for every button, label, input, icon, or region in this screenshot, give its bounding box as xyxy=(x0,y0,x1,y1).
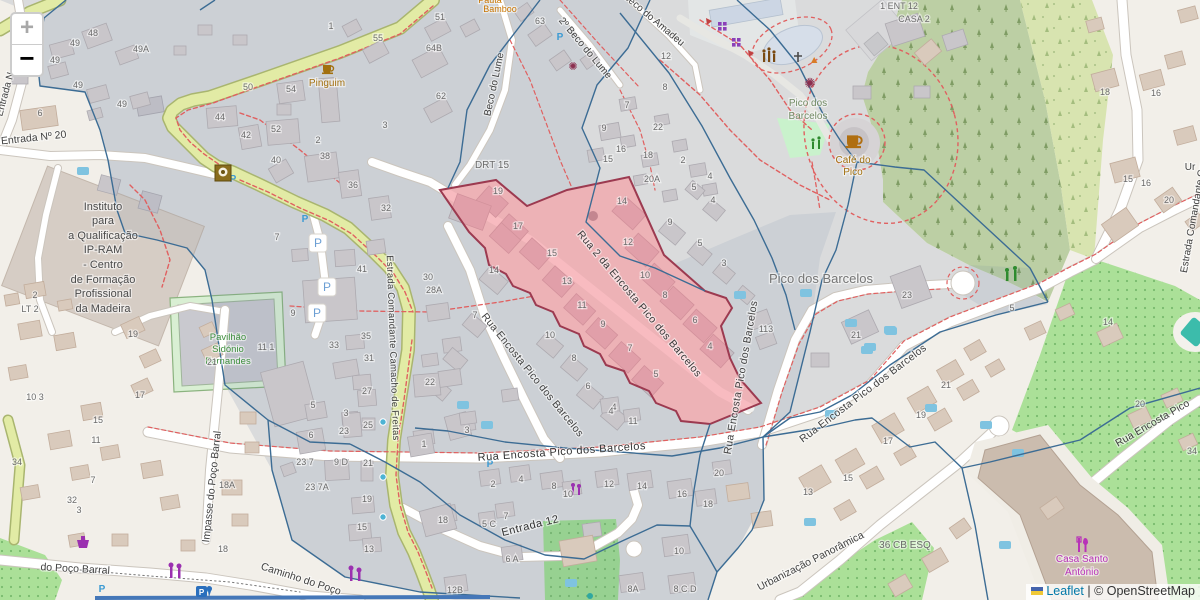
svg-text:32: 32 xyxy=(381,203,391,213)
svg-text:5: 5 xyxy=(653,369,658,379)
svg-text:Profissional: Profissional xyxy=(75,288,132,300)
svg-text:LT 2: LT 2 xyxy=(21,304,38,314)
svg-text:6: 6 xyxy=(308,430,313,440)
svg-text:7: 7 xyxy=(90,475,95,485)
svg-text:6: 6 xyxy=(37,108,42,118)
svg-text:5: 5 xyxy=(1009,303,1014,313)
svg-text:11 1: 11 1 xyxy=(258,342,275,352)
svg-text:8: 8 xyxy=(551,481,556,491)
svg-text:33: 33 xyxy=(329,340,339,350)
svg-text:18: 18 xyxy=(643,150,653,160)
svg-text:20: 20 xyxy=(1164,195,1174,205)
svg-text:16: 16 xyxy=(1151,88,1161,98)
svg-text:16: 16 xyxy=(1141,178,1151,188)
svg-text:21: 21 xyxy=(851,330,861,340)
svg-text:17: 17 xyxy=(135,390,145,400)
svg-text:a Qualificação: a Qualificação xyxy=(68,230,138,242)
svg-text:8A: 8A xyxy=(627,584,638,594)
svg-text:3: 3 xyxy=(721,258,726,268)
svg-text:1: 1 xyxy=(421,439,426,449)
svg-text:12B: 12B xyxy=(447,585,463,595)
svg-text:40: 40 xyxy=(271,155,281,165)
svg-text:4: 4 xyxy=(710,195,715,205)
svg-text:3: 3 xyxy=(343,408,348,418)
svg-text:4: 4 xyxy=(518,474,523,484)
svg-text:20: 20 xyxy=(1135,399,1145,409)
svg-text:para: para xyxy=(92,215,115,227)
svg-text:5: 5 xyxy=(691,182,696,192)
svg-text:Barcelos: Barcelos xyxy=(789,111,828,122)
svg-text:2: 2 xyxy=(32,290,37,300)
svg-text:✺: ✺ xyxy=(804,75,816,91)
svg-text:P: P xyxy=(99,584,106,595)
svg-text:CASA 2: CASA 2 xyxy=(898,14,930,24)
svg-text:2: 2 xyxy=(680,155,685,165)
svg-text:7: 7 xyxy=(472,310,477,320)
svg-text:64B: 64B xyxy=(426,43,442,53)
svg-text:4: 4 xyxy=(707,171,712,181)
svg-text:13: 13 xyxy=(803,487,813,497)
svg-text:23 7: 23 7 xyxy=(296,457,314,467)
svg-text:10 3: 10 3 xyxy=(26,392,44,402)
svg-text:34: 34 xyxy=(12,457,22,467)
svg-text:41: 41 xyxy=(357,264,367,274)
svg-text:10: 10 xyxy=(563,489,573,499)
svg-text:63: 63 xyxy=(535,16,545,26)
svg-text:23: 23 xyxy=(902,290,912,300)
svg-text:3: 3 xyxy=(464,425,469,435)
svg-text:18: 18 xyxy=(1100,87,1110,97)
svg-text:18: 18 xyxy=(438,515,448,525)
svg-text:10: 10 xyxy=(640,270,650,280)
svg-text:8: 8 xyxy=(662,82,667,92)
svg-text:14: 14 xyxy=(489,265,499,275)
svg-text:15: 15 xyxy=(843,473,853,483)
svg-text:9: 9 xyxy=(600,319,605,329)
svg-text:9 D: 9 D xyxy=(334,457,349,467)
svg-text:21: 21 xyxy=(207,357,217,367)
svg-text:Café do: Café do xyxy=(835,155,870,166)
svg-text:44: 44 xyxy=(215,112,225,122)
svg-text:1: 1 xyxy=(328,21,333,31)
svg-text:15: 15 xyxy=(93,415,103,425)
svg-text:Pico dos: Pico dos xyxy=(789,98,827,109)
svg-text:19: 19 xyxy=(362,494,372,504)
svg-text:4: 4 xyxy=(707,341,712,351)
svg-text:Pauta: Pauta xyxy=(478,0,502,5)
svg-text:32: 32 xyxy=(67,495,77,505)
svg-text:55: 55 xyxy=(373,33,383,43)
svg-text:35: 35 xyxy=(361,331,371,341)
svg-text:17: 17 xyxy=(883,436,893,446)
svg-text:5 C: 5 C xyxy=(482,519,497,529)
svg-text:18: 18 xyxy=(703,499,713,509)
svg-text:17: 17 xyxy=(513,221,523,231)
svg-text:9: 9 xyxy=(290,308,295,318)
svg-text:Pinguim: Pinguim xyxy=(309,78,345,89)
svg-text:Ur: Ur xyxy=(1185,162,1196,173)
svg-text:de Formação: de Formação xyxy=(71,274,136,286)
svg-text:28A: 28A xyxy=(426,285,442,295)
svg-text:14: 14 xyxy=(637,481,647,491)
svg-text:48: 48 xyxy=(88,28,98,38)
svg-text:6: 6 xyxy=(585,381,590,391)
svg-text:21: 21 xyxy=(941,380,951,390)
svg-text:19: 19 xyxy=(128,329,138,339)
svg-text:22: 22 xyxy=(653,122,663,132)
svg-text:Casa Santo: Casa Santo xyxy=(1056,554,1109,565)
svg-text:20: 20 xyxy=(714,468,724,478)
svg-text:25: 25 xyxy=(363,420,373,430)
svg-text:13: 13 xyxy=(562,276,572,286)
svg-text:da Madeira: da Madeira xyxy=(75,303,131,315)
svg-text:11: 11 xyxy=(628,416,637,426)
svg-text:11: 11 xyxy=(91,435,100,445)
svg-text:15: 15 xyxy=(547,248,557,258)
svg-text:Instituto: Instituto xyxy=(84,201,123,213)
svg-text:Sidónio: Sidónio xyxy=(212,344,244,355)
svg-text:36: 36 xyxy=(348,180,358,190)
svg-text:12: 12 xyxy=(661,51,671,61)
svg-text:8: 8 xyxy=(571,353,576,363)
svg-text:30: 30 xyxy=(423,272,433,282)
svg-text:✺: ✺ xyxy=(568,61,577,73)
svg-text:P: P xyxy=(323,280,331,294)
svg-text:P: P xyxy=(314,236,322,250)
svg-text:20A: 20A xyxy=(644,174,660,184)
svg-text:2: 2 xyxy=(490,479,495,489)
svg-text:7: 7 xyxy=(627,343,632,353)
svg-text:5: 5 xyxy=(697,238,702,248)
svg-text:António: António xyxy=(1065,567,1099,578)
svg-text:51: 51 xyxy=(435,12,445,22)
svg-text:49: 49 xyxy=(73,80,83,90)
svg-text:10: 10 xyxy=(674,546,684,556)
svg-text:16: 16 xyxy=(616,144,626,154)
svg-text:54: 54 xyxy=(286,84,296,94)
svg-text:9: 9 xyxy=(667,217,672,227)
svg-text:12: 12 xyxy=(623,237,633,247)
svg-text:49: 49 xyxy=(70,38,80,48)
svg-text:7: 7 xyxy=(274,232,279,242)
svg-text:7: 7 xyxy=(624,100,629,110)
svg-text:18A: 18A xyxy=(219,480,235,490)
svg-text:Bamboo: Bamboo xyxy=(483,4,517,14)
svg-text:15: 15 xyxy=(357,522,367,532)
svg-text:21: 21 xyxy=(363,458,373,468)
svg-text:1 ENT 12: 1 ENT 12 xyxy=(880,1,918,11)
svg-text:36 CB ESQ: 36 CB ESQ xyxy=(879,540,931,551)
svg-text:14: 14 xyxy=(1103,317,1113,327)
svg-text:49A: 49A xyxy=(133,44,149,54)
svg-text:31: 31 xyxy=(364,353,374,363)
svg-text:6: 6 xyxy=(692,315,697,325)
svg-text:10: 10 xyxy=(545,330,555,340)
svg-text:27: 27 xyxy=(362,386,372,396)
svg-text:22: 22 xyxy=(425,377,435,387)
svg-text:P: P xyxy=(199,588,205,597)
svg-text:8 C D: 8 C D xyxy=(673,584,697,594)
svg-text:19: 19 xyxy=(493,186,503,196)
svg-text:Pico: Pico xyxy=(843,167,863,178)
svg-text:49: 49 xyxy=(50,55,60,65)
svg-text:Pavilhão: Pavilhão xyxy=(210,332,246,343)
svg-text:49: 49 xyxy=(117,99,127,109)
svg-text:3: 3 xyxy=(382,120,387,130)
svg-text:DRT 15: DRT 15 xyxy=(475,160,510,171)
svg-text:- Centro: - Centro xyxy=(83,259,123,271)
svg-text:P: P xyxy=(557,32,564,43)
svg-text:4: 4 xyxy=(608,406,613,416)
svg-text:52: 52 xyxy=(271,124,281,134)
svg-text:18: 18 xyxy=(218,544,228,554)
svg-text:7: 7 xyxy=(503,511,508,521)
svg-text:15: 15 xyxy=(1123,174,1133,184)
svg-text:34: 34 xyxy=(1187,446,1197,456)
svg-text:42: 42 xyxy=(241,130,251,140)
svg-text:23: 23 xyxy=(339,426,349,436)
svg-text:113: 113 xyxy=(759,324,773,334)
svg-text:13: 13 xyxy=(364,544,374,554)
svg-text:P: P xyxy=(313,306,321,320)
svg-text:12: 12 xyxy=(604,479,614,489)
svg-text:3: 3 xyxy=(76,505,81,515)
svg-text:Pico dos Barcelos: Pico dos Barcelos xyxy=(769,271,874,286)
svg-text:2: 2 xyxy=(315,135,320,145)
svg-text:IP-RAM: IP-RAM xyxy=(84,244,123,256)
svg-text:15: 15 xyxy=(603,154,613,164)
svg-text:6 A: 6 A xyxy=(505,554,518,564)
svg-text:8: 8 xyxy=(662,290,667,300)
svg-text:50: 50 xyxy=(243,82,253,92)
svg-text:19: 19 xyxy=(916,410,926,420)
svg-text:11: 11 xyxy=(577,300,586,310)
svg-text:14: 14 xyxy=(617,196,627,206)
svg-text:16: 16 xyxy=(677,489,687,499)
svg-text:P: P xyxy=(302,214,309,225)
svg-text:62: 62 xyxy=(436,91,446,101)
svg-text:9: 9 xyxy=(601,123,606,133)
svg-text:38: 38 xyxy=(320,151,330,161)
svg-text:5: 5 xyxy=(310,400,315,410)
svg-text:23 7A: 23 7A xyxy=(305,482,329,492)
